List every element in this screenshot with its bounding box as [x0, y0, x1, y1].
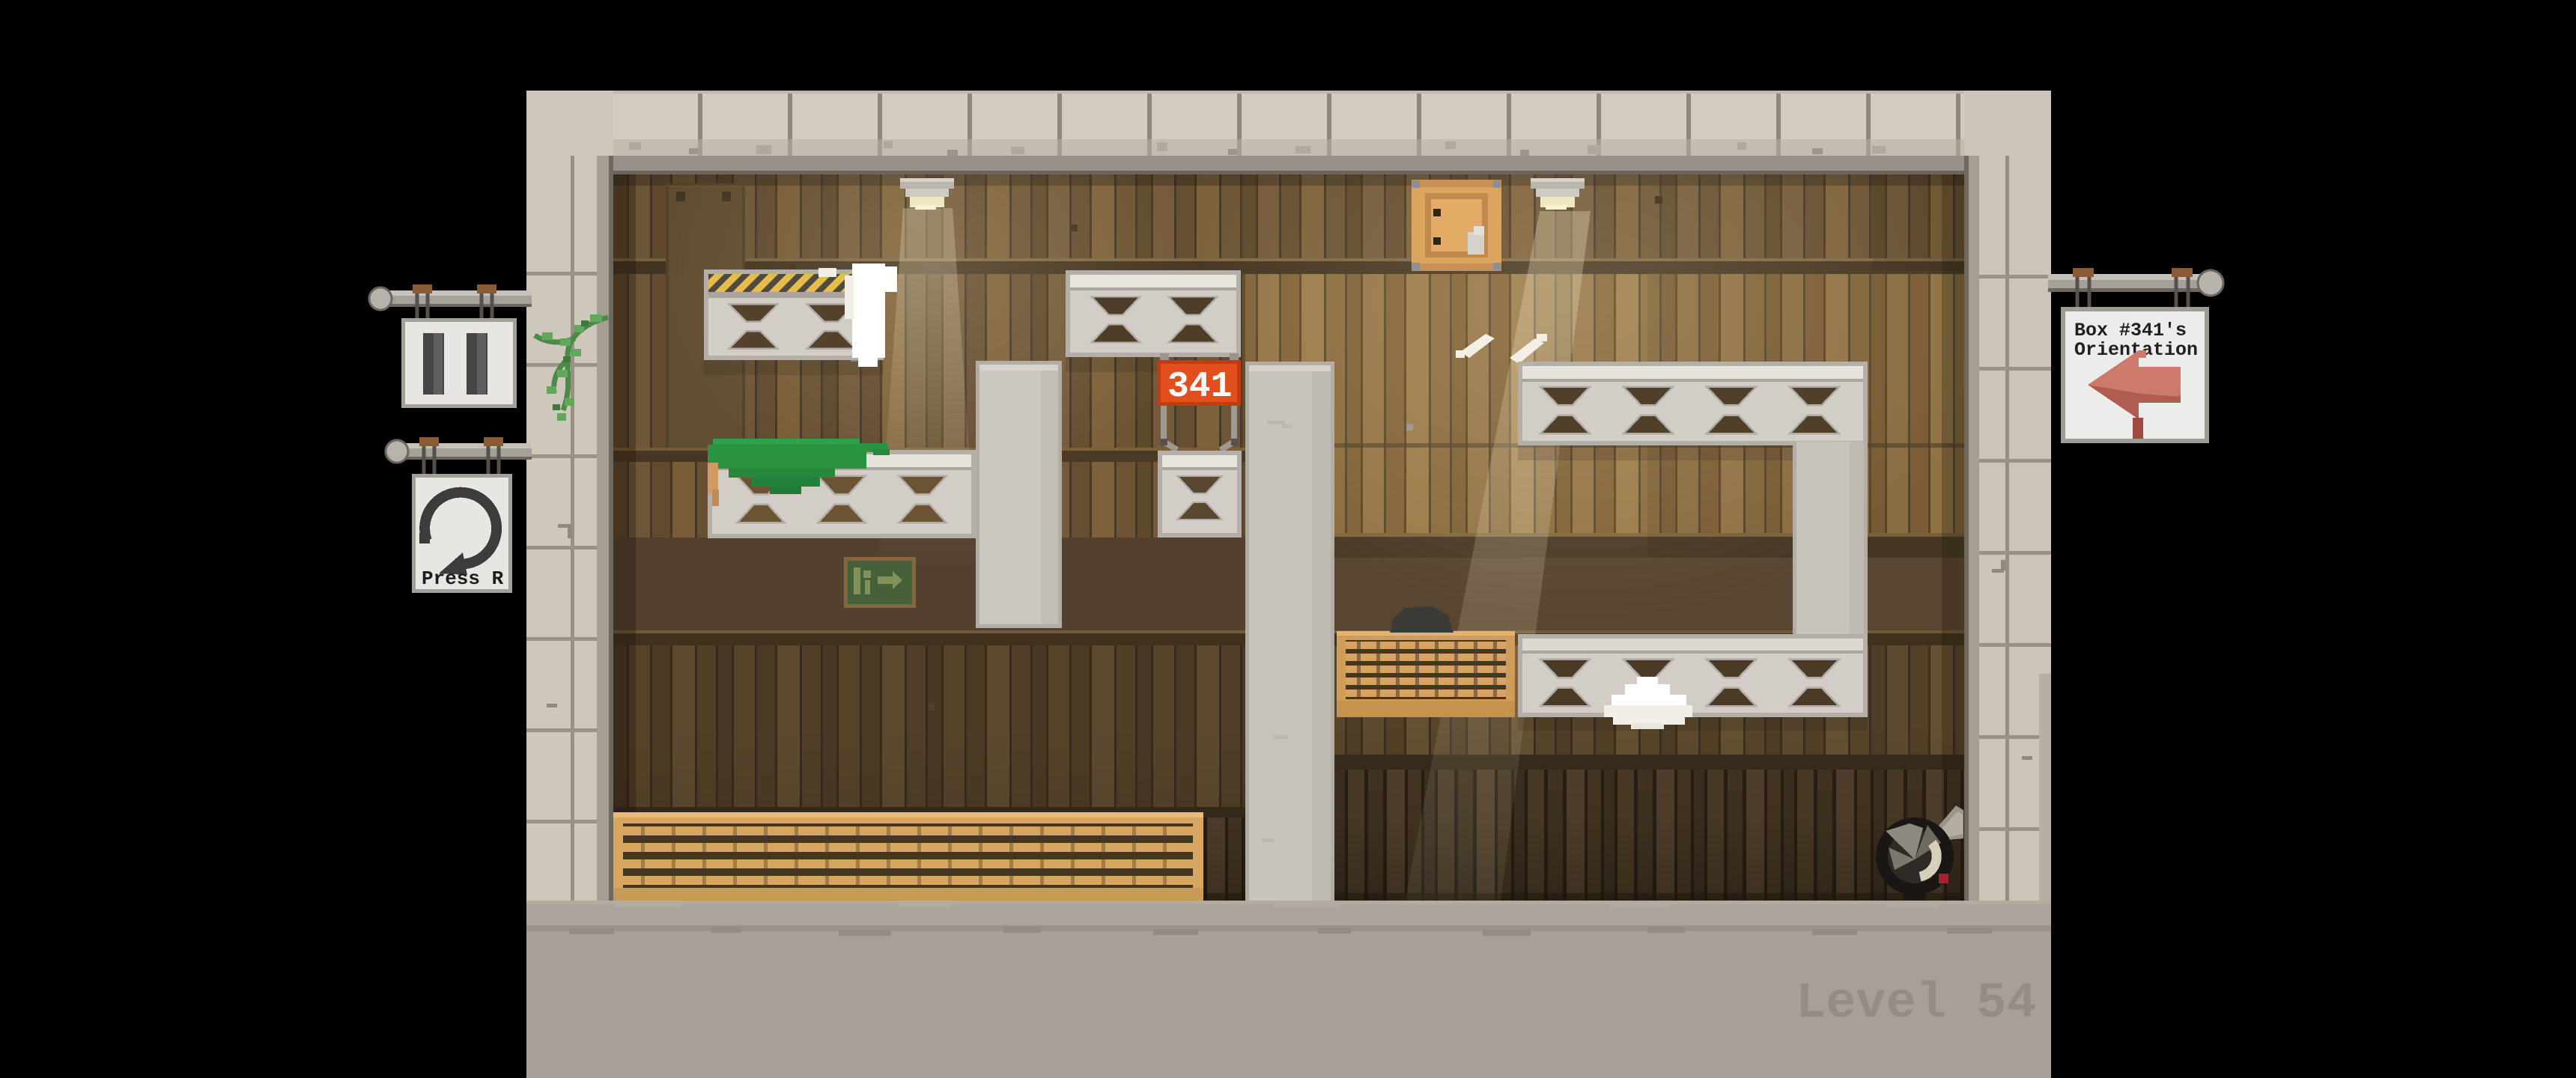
svg-text:Level 54: Level 54 — [1796, 975, 2037, 1032]
svg-text:Press R: Press R — [422, 567, 504, 590]
svg-text:Box #341's: Box #341's — [2074, 320, 2187, 341]
svg-text:341: 341 — [1167, 367, 1232, 407]
